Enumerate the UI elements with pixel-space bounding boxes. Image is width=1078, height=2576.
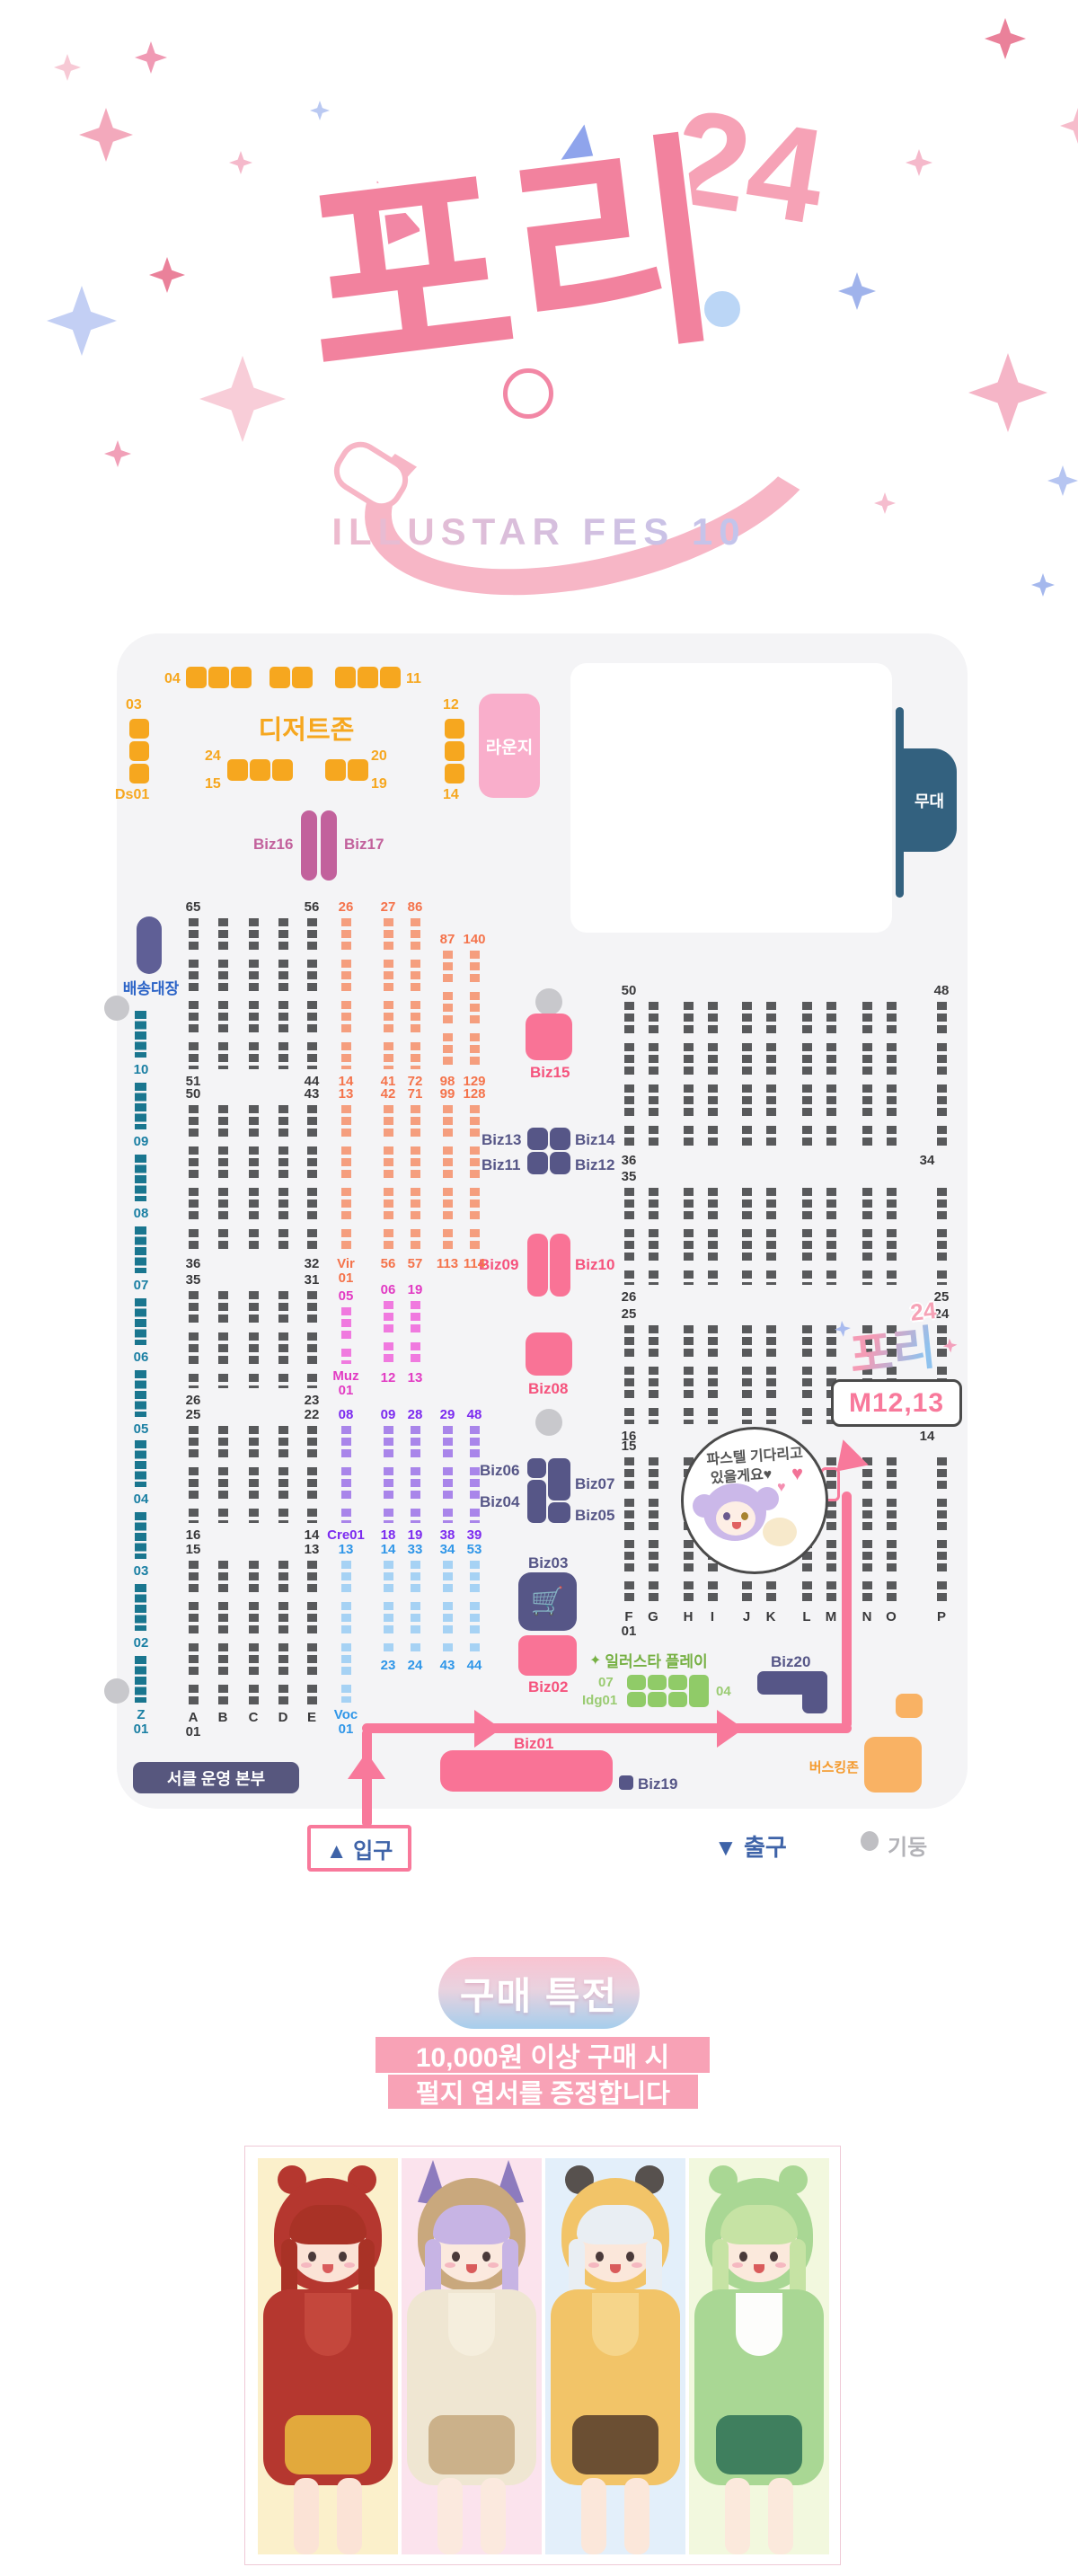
- dessert-label: 19: [371, 776, 387, 792]
- booth-row-label: 31: [305, 1273, 320, 1288]
- booth-row-label: 26: [186, 1394, 201, 1408]
- booth-column: [470, 1561, 480, 1653]
- biz13-booth: [527, 1128, 548, 1150]
- booth-row-label: D: [278, 1711, 288, 1725]
- wall-strip: [135, 1011, 146, 1058]
- booth-row-label: F 01: [622, 1610, 637, 1639]
- wall-strip: [135, 1226, 146, 1273]
- leg: [581, 2478, 606, 2554]
- booth-column: [443, 1561, 453, 1653]
- leg: [437, 2478, 463, 2554]
- booth-column: [249, 1561, 259, 1705]
- booth-row-label: Voc 01: [334, 1708, 358, 1737]
- booth-row-label: 36: [622, 1154, 637, 1168]
- booth-row-label: 50: [622, 984, 637, 998]
- dessert-booth: [445, 741, 464, 761]
- booth-column: [624, 1002, 634, 1148]
- booth-column: [887, 1002, 897, 1148]
- booth-column: [249, 918, 259, 1069]
- character-bangs: [577, 2205, 654, 2244]
- route-line-horizontal: [362, 1723, 852, 1733]
- booth-column: [384, 1105, 393, 1252]
- idg-booth: [668, 1675, 687, 1690]
- star-icon: [1047, 465, 1078, 496]
- booth-row-label: 42: [381, 1087, 396, 1102]
- booth-row-label: 09: [381, 1408, 396, 1422]
- biz14-label: Biz14: [575, 1131, 614, 1149]
- chibi-face: [716, 1501, 755, 1536]
- biz17-booth: [321, 810, 337, 881]
- star-icon: [104, 440, 131, 467]
- booth-column: [766, 1188, 776, 1285]
- blush: [488, 2262, 499, 2268]
- booth-row-label: 15: [186, 1543, 201, 1557]
- booth-row-label: 16: [186, 1528, 201, 1543]
- booth-column: [708, 1325, 718, 1424]
- biz14-booth: [550, 1128, 570, 1150]
- biz20-booth: [802, 1671, 827, 1713]
- booth-column: [341, 1561, 351, 1703]
- biz15-label: Biz15: [530, 1064, 570, 1082]
- idg-booth: [668, 1692, 687, 1707]
- wall-strip-label: 03: [134, 1564, 149, 1579]
- booth-row-label: 18: [381, 1528, 396, 1543]
- dessert-booth: [358, 667, 378, 688]
- biz05-booth: [548, 1502, 570, 1523]
- booth-row-label: P: [937, 1610, 946, 1624]
- idg-label: Idg01: [582, 1693, 617, 1708]
- booth-column: [766, 1325, 776, 1424]
- booth-callout: M12,13: [831, 1379, 962, 1427]
- hoodie-pocket: [716, 2415, 802, 2474]
- lounge-label: 라운지: [486, 734, 533, 758]
- entrance-label: ▲ 입구: [326, 1833, 393, 1864]
- booth-column: [624, 1188, 634, 1285]
- paw-print-icon: [701, 288, 744, 331]
- booth-column: [411, 1561, 420, 1653]
- booth-row-label: 27: [381, 900, 396, 915]
- booth-column: [649, 1457, 658, 1605]
- biz06-label: Biz06: [480, 1462, 519, 1480]
- star-icon: [229, 151, 252, 174]
- booth-row-label: J: [743, 1610, 750, 1624]
- dessert-label: 14: [443, 787, 459, 803]
- biz11-booth: [527, 1152, 548, 1174]
- wall-strip-label: 04: [134, 1492, 149, 1507]
- booth-column: [742, 1188, 752, 1285]
- eye-icon: [339, 2252, 347, 2262]
- pillar-icon: [535, 1409, 562, 1436]
- booth-row-label: 140: [463, 933, 485, 947]
- booth-row-label: 71: [408, 1087, 423, 1102]
- booth-row-label: G: [648, 1610, 658, 1624]
- booth-row-label: 28: [408, 1408, 423, 1422]
- biz16-booth: [301, 810, 317, 881]
- idg-booth: [648, 1692, 667, 1707]
- booth-column: [766, 1002, 776, 1148]
- hoodie-front: [305, 2293, 351, 2356]
- booth-row-label: B: [218, 1711, 228, 1725]
- promo-title-pill: 구매 특전: [438, 1957, 640, 2029]
- biz04-label: Biz04: [480, 1493, 519, 1511]
- booth-column: [189, 1291, 199, 1388]
- eye-icon: [596, 2252, 604, 2262]
- booth-column: [937, 1457, 947, 1605]
- wall-strip: [135, 1370, 146, 1417]
- blush: [445, 2262, 455, 2268]
- promo-title: 구매 특전: [460, 1966, 618, 2021]
- chibi-bun: [755, 1487, 779, 1510]
- idg-booth: [648, 1675, 667, 1690]
- dessert-label: 03: [126, 697, 142, 713]
- hoodie-front: [736, 2293, 782, 2356]
- booth-column: [684, 1325, 694, 1424]
- booth-row-label: 35: [186, 1273, 201, 1288]
- booth-column: [862, 1002, 872, 1148]
- biz08-label: Biz08: [528, 1380, 568, 1398]
- dessert-label: 24: [205, 748, 221, 765]
- dessert-booth: [227, 759, 248, 781]
- booth-column: [218, 1291, 228, 1388]
- blush: [775, 2262, 786, 2268]
- star-icon: [874, 492, 896, 514]
- fox-ear-hood-girl: [402, 2158, 542, 2554]
- booth-column: [384, 1301, 393, 1366]
- booth-column: [307, 1561, 317, 1705]
- leg: [768, 2478, 793, 2554]
- booth-row-label: 39: [467, 1528, 482, 1543]
- eye-icon: [626, 2252, 634, 2262]
- hoodie-pocket: [429, 2415, 515, 2474]
- booth-row-label: 34: [440, 1543, 455, 1557]
- illustar-play-logo: ✦ 일러스타 플레이: [589, 1649, 708, 1671]
- leg: [481, 2478, 506, 2554]
- pillar-icon: [535, 988, 562, 1015]
- booth-row-label: 65: [186, 900, 201, 915]
- booth-row-label: 57: [408, 1257, 423, 1271]
- booth-column: [684, 1188, 694, 1285]
- hoodie-front: [448, 2293, 495, 2356]
- booth-column: [189, 1561, 199, 1705]
- idg-booth: [689, 1675, 709, 1707]
- biz16-label: Biz16: [253, 836, 293, 854]
- booth-column: [384, 918, 393, 1069]
- wall-strip: [135, 1512, 146, 1559]
- booth-row-label: 86: [408, 900, 423, 915]
- booth-row-label: 19: [408, 1283, 423, 1297]
- route-arrow-right: [474, 1710, 501, 1748]
- character-bangs: [720, 2205, 798, 2244]
- booth-column: [470, 951, 480, 1069]
- biz10-label: Biz10: [575, 1256, 614, 1274]
- red-hood-girl: [258, 2158, 398, 2554]
- booth-column: [278, 1561, 288, 1705]
- booth-row-label: 26: [339, 900, 354, 915]
- booth-row-label: I: [711, 1610, 714, 1624]
- booth-row-label: 22: [305, 1408, 320, 1422]
- idg-label: 07: [598, 1675, 614, 1690]
- pillar-icon: [104, 1678, 129, 1704]
- booth-row-label: O: [886, 1610, 897, 1624]
- booth-column: [189, 918, 199, 1069]
- leg: [294, 2478, 319, 2554]
- chibi-bun: [693, 1494, 716, 1518]
- booth-row-label: 44: [467, 1659, 482, 1673]
- booth-row-label: 32: [305, 1257, 320, 1271]
- busking-block: [896, 1694, 923, 1718]
- pillar-legend-icon: [861, 1831, 879, 1851]
- booth-column: [341, 1105, 351, 1252]
- stage-label: 무대: [915, 789, 944, 812]
- wall-strip: [135, 1584, 146, 1631]
- dessert-label: 11: [406, 671, 421, 687]
- booth-row-label: 34: [920, 1154, 935, 1168]
- booth-row-label: 13: [339, 1087, 354, 1102]
- booth-row-label: K: [766, 1610, 776, 1624]
- booth-column: [826, 1002, 836, 1148]
- booth-column: [189, 1105, 199, 1252]
- biz13-label: Biz13: [482, 1131, 521, 1149]
- green-frog-hood-girl: [689, 2158, 829, 2554]
- leg: [337, 2478, 362, 2554]
- lounge-area: 라운지: [479, 694, 540, 798]
- yellow-bear-hood-girl: [545, 2158, 685, 2554]
- booth-column: [684, 1002, 694, 1148]
- booth-row-label: 114: [464, 1257, 485, 1271]
- route-arrow-right: [717, 1710, 744, 1748]
- booth-row-label: 08: [339, 1408, 354, 1422]
- booth-column: [624, 1457, 634, 1605]
- booth-column: [189, 1426, 199, 1523]
- mini-logo-text: 포리: [846, 1309, 939, 1385]
- booth-column: [218, 1561, 228, 1705]
- dessert-booth: [129, 719, 149, 739]
- booth-row-label: N: [862, 1610, 872, 1624]
- booth-column: [708, 1002, 718, 1148]
- booth-row-label: 33: [408, 1543, 423, 1557]
- biz11-label: Biz11: [482, 1156, 520, 1174]
- mini-logo-star: [942, 1338, 959, 1354]
- booth-row-label: 50: [186, 1087, 201, 1102]
- booth-row-label: Cre01: [327, 1528, 365, 1543]
- biz12-booth: [550, 1152, 570, 1174]
- hoodie-front: [592, 2293, 639, 2356]
- wall-strip: [135, 1656, 146, 1703]
- wall-strip: [135, 1440, 146, 1487]
- booth-column: [384, 1561, 393, 1653]
- eye-icon: [739, 2252, 747, 2262]
- booth-column: [470, 1426, 480, 1523]
- booth-row-label: 56: [305, 900, 320, 915]
- booth-column: [887, 1188, 897, 1285]
- route-arrow-up: [348, 1752, 385, 1779]
- booth-column: [862, 1188, 872, 1285]
- biz08-booth: [526, 1332, 572, 1376]
- dessert-booth: [325, 759, 346, 781]
- biz10-booth: [550, 1234, 570, 1297]
- poster: 24 포리 ILLUSTAR FES 10 무대 디저트존 04 11 24 1…: [0, 0, 1078, 2576]
- chibi-eye: [723, 1512, 730, 1520]
- wall-strip-label: 07: [134, 1279, 149, 1293]
- booth-column: [278, 1105, 288, 1252]
- booth-row-label: 53: [467, 1543, 482, 1557]
- booth-row-label: 25: [622, 1307, 637, 1322]
- booth-row-label: 43: [305, 1087, 320, 1102]
- event-subtitle: ILLUSTAR FES 10: [252, 510, 826, 553]
- booth-column: [624, 1325, 634, 1424]
- stage-block: 무대: [902, 748, 957, 852]
- booth-row-label: 14: [381, 1543, 396, 1557]
- dessert-booth: [269, 667, 290, 688]
- booth-column: [249, 1426, 259, 1523]
- booth-column: [411, 1426, 420, 1523]
- star-icon: [47, 286, 117, 356]
- booth-column: [708, 1188, 718, 1285]
- booth-row-label: E: [307, 1711, 316, 1725]
- booth-row-label: 128: [463, 1087, 485, 1102]
- wall-strip: [135, 1155, 146, 1201]
- promo-line2-bar: 펄지 엽서를 증정합니다: [388, 2075, 698, 2109]
- booth-column: [384, 1426, 393, 1523]
- booth-row-label: 24: [408, 1659, 423, 1673]
- leg: [624, 2478, 649, 2554]
- blush: [344, 2262, 355, 2268]
- mini-logo: 24 포리: [845, 1302, 960, 1385]
- blush: [632, 2262, 642, 2268]
- dessert-booth: [445, 764, 464, 783]
- booth-row-label: 25: [186, 1408, 201, 1422]
- booth-column: [307, 1426, 317, 1523]
- dessert-booth: [129, 741, 149, 761]
- blush: [732, 2262, 743, 2268]
- booth-row-label: 87: [440, 933, 455, 947]
- promo-line1: 10,000원 이상 구매 시: [416, 2035, 669, 2075]
- booth-row-label: C: [249, 1711, 259, 1725]
- character-bangs: [433, 2205, 510, 2244]
- booth-row-label: 23: [381, 1659, 396, 1673]
- wall-strip: [135, 1083, 146, 1129]
- chibi-plush: [763, 1518, 797, 1546]
- delivery-label: 배송대장: [106, 976, 196, 998]
- dessert-label: 12: [443, 697, 459, 713]
- booth-column: [649, 1188, 658, 1285]
- booth-row-label: 13: [339, 1543, 354, 1557]
- booth-row-label: 14: [305, 1528, 320, 1543]
- biz12-label: Biz12: [575, 1156, 614, 1174]
- booth-row-label: 36: [186, 1257, 201, 1271]
- biz04-booth: [527, 1480, 546, 1523]
- biz06-booth: [527, 1458, 546, 1478]
- booth-row-label: 35: [622, 1170, 637, 1184]
- stage-front-area: [570, 663, 892, 933]
- booth-column: [411, 1105, 420, 1252]
- booth-column: [649, 1002, 658, 1148]
- wall-strip-label: 05: [134, 1422, 149, 1437]
- booth-row-label: 06: [381, 1283, 396, 1297]
- booth-row-label: 56: [381, 1257, 396, 1271]
- heart-icon: ♥: [777, 1480, 786, 1496]
- promo-line1-bar: 10,000원 이상 구매 시: [376, 2037, 710, 2073]
- booth-column: [937, 1188, 947, 1285]
- biz07-label: Biz07: [575, 1475, 614, 1493]
- wall-strip-label: 10: [134, 1063, 149, 1077]
- dessert-booth: [231, 667, 252, 688]
- biz02-label: Biz02: [528, 1678, 568, 1696]
- booth-row-label: 43: [440, 1659, 455, 1673]
- booth-column: [742, 1325, 752, 1424]
- dessert-booth: [186, 667, 207, 688]
- biz01-booth: [440, 1750, 613, 1792]
- booth-column: [802, 1002, 812, 1148]
- route-line-vertical: [842, 1492, 852, 1729]
- booth-column: [802, 1188, 812, 1285]
- delivery-booth: [137, 916, 162, 974]
- dessert-label: Ds01: [115, 787, 149, 803]
- booth-column: [802, 1325, 812, 1424]
- event-logo: 24 포리 ILLUSTAR FES 10: [252, 72, 826, 521]
- booth-column: [341, 1426, 351, 1523]
- booth-column: [307, 1105, 317, 1252]
- dessert-booth: [292, 667, 313, 688]
- wall-strip-label: Z 01: [134, 1708, 149, 1737]
- booth-column: [937, 1002, 947, 1148]
- hoodie-pocket: [572, 2415, 658, 2474]
- booth-row-label: 38: [440, 1528, 455, 1543]
- booth-column: [218, 918, 228, 1069]
- star-icon: [135, 41, 167, 74]
- booth-column: [341, 1307, 351, 1364]
- play-logo-text: 일러스타 플레이: [605, 1649, 707, 1671]
- eye-icon: [482, 2252, 490, 2262]
- booth-row-label: L: [802, 1610, 810, 1624]
- pillar-icon: [104, 996, 129, 1021]
- booth-column: [341, 918, 351, 1069]
- star-icon: [54, 54, 81, 81]
- booth-row-label: 26: [622, 1290, 637, 1305]
- dessert-booth: [208, 667, 229, 688]
- booth-column: [278, 1291, 288, 1388]
- dessert-booth: [129, 764, 149, 783]
- idg-booth: [627, 1692, 646, 1707]
- booth-column: [249, 1105, 259, 1252]
- exit-label: ▼ 출구: [714, 1829, 787, 1863]
- biz19-booth: [619, 1775, 633, 1790]
- dessert-label: 04: [164, 671, 181, 687]
- booth-row-label: 113: [437, 1257, 458, 1271]
- dessert-booth: [445, 719, 464, 739]
- paw-print-icon: [503, 368, 553, 419]
- pillar-legend-label: 기둥: [888, 1829, 927, 1861]
- booth-row-label: 15: [622, 1439, 637, 1454]
- biz05-label: Biz05: [575, 1507, 614, 1525]
- circle-hq-label: 서클 운영 본부: [167, 1766, 265, 1790]
- leg: [725, 2478, 750, 2554]
- eye-icon: [308, 2252, 316, 2262]
- booth-column: [278, 1426, 288, 1523]
- star-icon: [149, 257, 185, 293]
- booth-row-label: 29: [440, 1408, 455, 1422]
- booth-column: [443, 951, 453, 1069]
- busking-label: 버스킹존: [807, 1757, 859, 1776]
- dessert-booth: [250, 759, 270, 781]
- booth-row-label: A 01: [186, 1711, 201, 1739]
- booth-column: [278, 918, 288, 1069]
- play-star-icon: ✦: [589, 1651, 601, 1669]
- booth-row-label: 23: [305, 1394, 320, 1408]
- booth-row-label: 13: [305, 1543, 320, 1557]
- booth-callout-text: M12,13: [849, 1388, 944, 1419]
- dessert-booth: [348, 759, 368, 781]
